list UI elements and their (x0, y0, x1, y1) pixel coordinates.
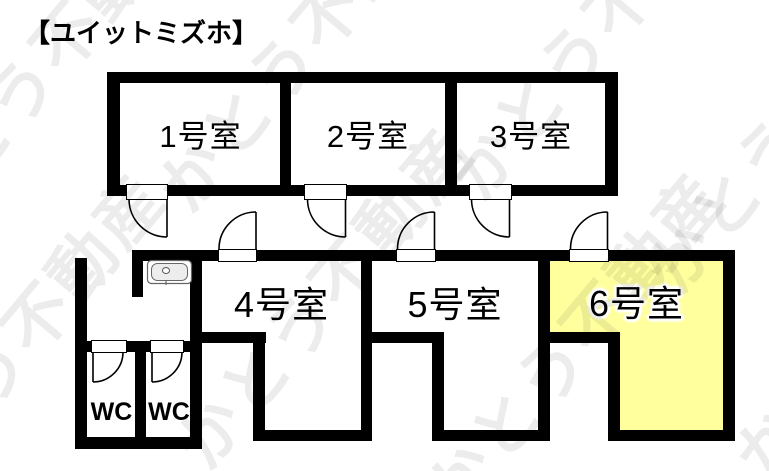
room-4-label: 4号室 (202, 279, 361, 325)
room-5-label: 5号室 (372, 279, 538, 325)
wc-1-label: WC (87, 398, 136, 426)
plan-title: 【ユイットミズホ】 (24, 13, 258, 50)
floorplan: 【ユイットミズホ】 1号室 2号室 3号室 4号室 5号室 6号室 (0, 0, 769, 471)
wc-2-label: WC (148, 398, 190, 426)
room-1-label: 1号室 (121, 111, 280, 155)
room-3-label: 3号室 (457, 111, 605, 155)
room-2-label: 2号室 (291, 111, 445, 155)
room-6-label: 6号室 (550, 278, 723, 324)
